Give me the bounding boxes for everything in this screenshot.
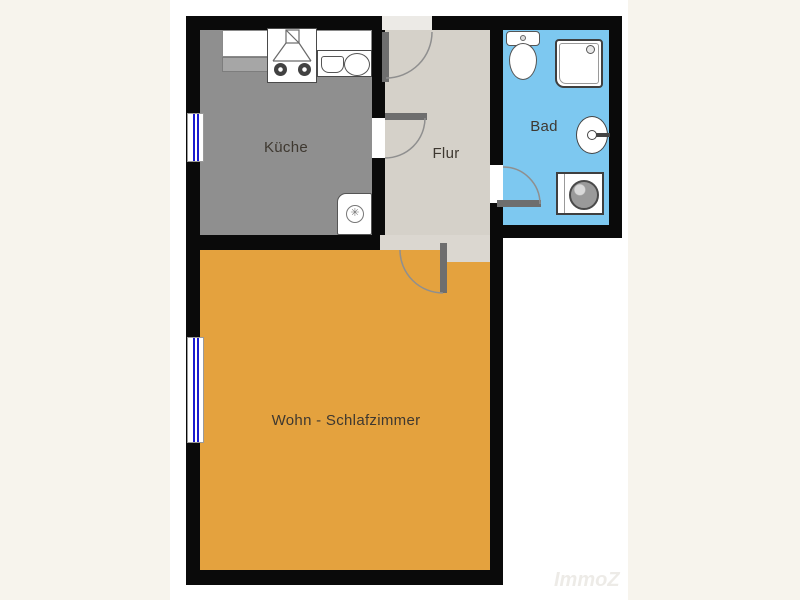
washing-machine-door-icon	[569, 180, 599, 210]
kueche-door-leaf	[385, 113, 427, 120]
room-wohn-schlafzimmer	[192, 243, 497, 578]
wall-left	[186, 16, 200, 585]
drain-icon	[586, 45, 595, 54]
bad-door-leaf	[497, 200, 541, 207]
entrance-door-leaf	[382, 32, 389, 82]
wall-bottom	[186, 570, 503, 585]
washing-machine	[556, 172, 604, 215]
burner-icon	[298, 63, 311, 76]
flush-button-icon	[520, 35, 526, 41]
room-label-flur: Flur	[376, 145, 516, 162]
wohnzimmer-window	[187, 337, 204, 443]
wall-flur-bad	[490, 16, 503, 585]
sink-basin-right	[344, 53, 370, 76]
burner-icon	[274, 63, 287, 76]
stove	[267, 28, 317, 83]
entrance-door-opening	[382, 16, 432, 30]
window-glass-icon	[193, 114, 199, 161]
wohnzimmer-door-leaf	[440, 243, 447, 293]
detergent-drawer-icon	[564, 174, 565, 213]
fan-icon	[346, 205, 364, 223]
door-niche	[443, 250, 490, 262]
floorplan-page: Küche Flur Bad Wohn - Schlafzimmer ImmoZ	[0, 0, 800, 600]
shower-tray	[555, 39, 603, 88]
bad-door-opening	[490, 165, 503, 203]
sink-basin-left	[321, 56, 344, 73]
watermark-text: ImmoZ	[554, 569, 634, 592]
wall-bad-bottom	[503, 225, 622, 238]
window-glass-icon	[193, 338, 199, 442]
kueche-window	[187, 113, 204, 162]
room-label-wohn-schlafzimmer: Wohn - Schlafzimmer	[226, 412, 466, 429]
wohnzimmer-door-opening	[380, 235, 490, 250]
room-label-kueche: Küche	[216, 139, 356, 156]
wall-middle	[186, 235, 380, 250]
room-label-bad: Bad	[474, 118, 614, 135]
